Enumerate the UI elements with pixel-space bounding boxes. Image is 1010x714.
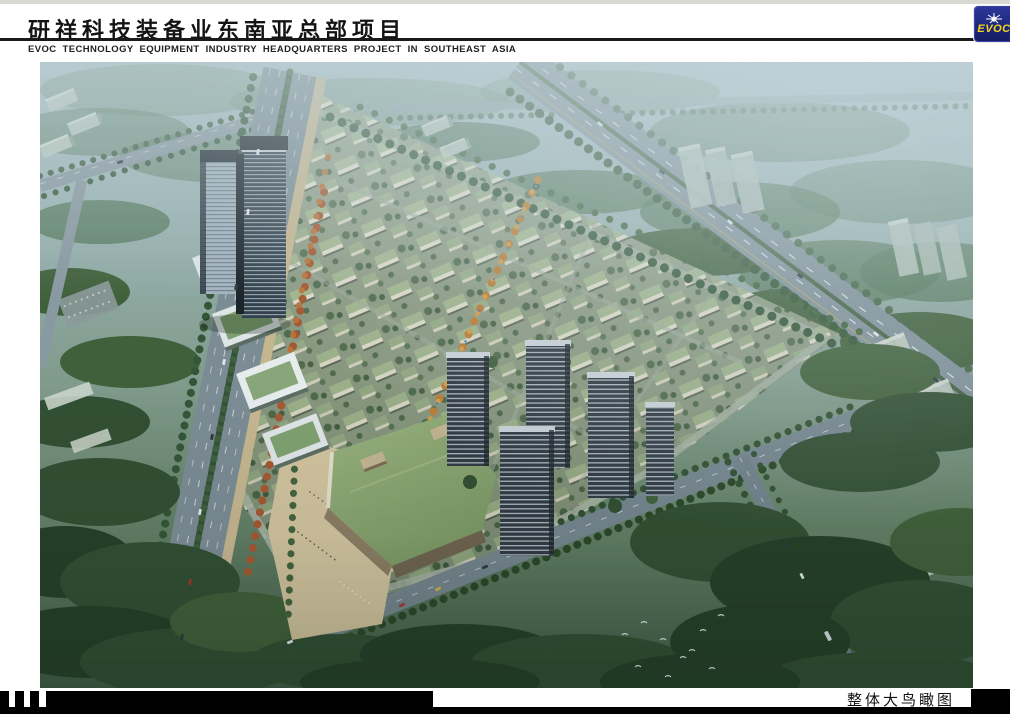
title-underline — [0, 38, 978, 41]
evoc-logo: EVOC — [973, 5, 1010, 43]
footer-barcode-mark — [0, 691, 9, 707]
aerial-rendering-image — [40, 62, 973, 688]
footer-bar-right — [971, 689, 1010, 714]
page-subtitle: EVOC TECHNOLOGY EQUIPMENT INDUSTRY HEADQ… — [28, 44, 516, 55]
aerial-rendering-scene — [40, 62, 973, 688]
footer-bar-left — [46, 691, 433, 707]
evoc-logo-text: EVOC — [977, 23, 1010, 35]
presentation-board: 研祥科技装备业东南亚总部项目 EVOC TECHNOLOGY EQUIPMENT… — [0, 0, 1010, 714]
haze-overlay — [40, 62, 973, 688]
footer-barcode-mark — [15, 691, 24, 707]
top-edge-strip — [0, 0, 1010, 4]
footer-barcode-mark — [30, 691, 39, 707]
image-caption: 整体大鸟瞰图 — [847, 689, 955, 710]
